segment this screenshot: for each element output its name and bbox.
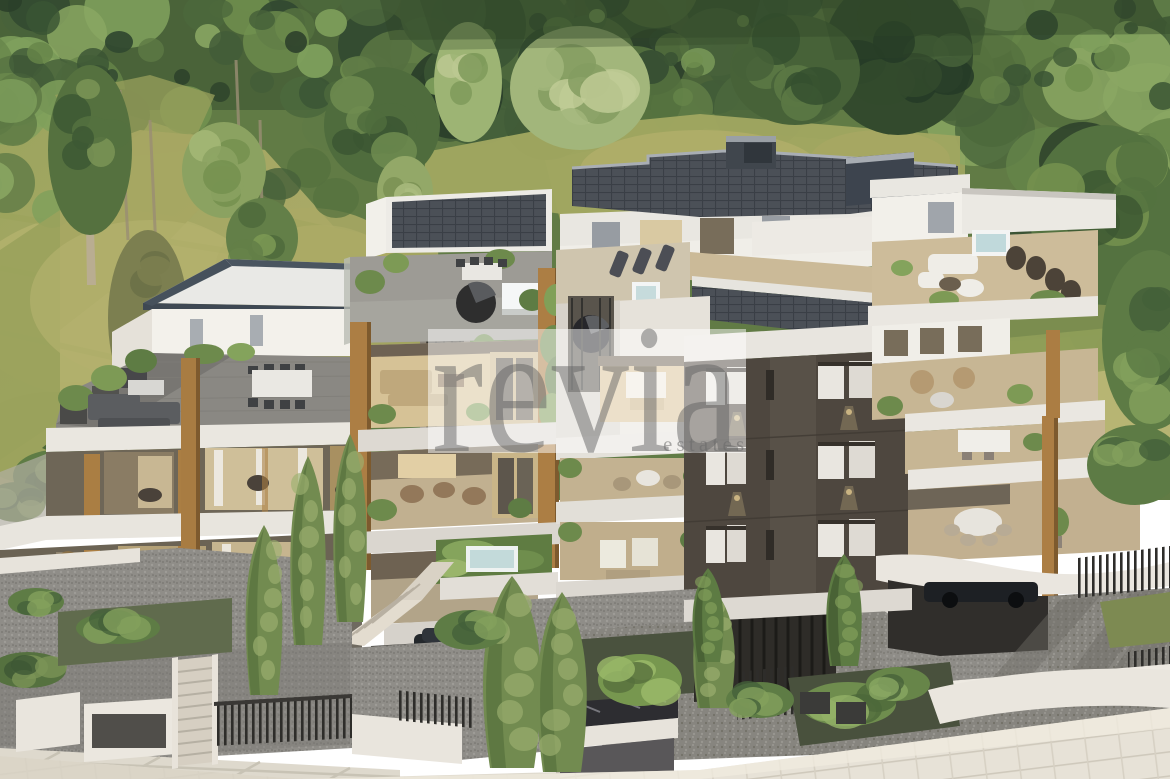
svg-text:estates: estates	[663, 432, 748, 456]
svg-text:revia: revia	[432, 287, 740, 492]
